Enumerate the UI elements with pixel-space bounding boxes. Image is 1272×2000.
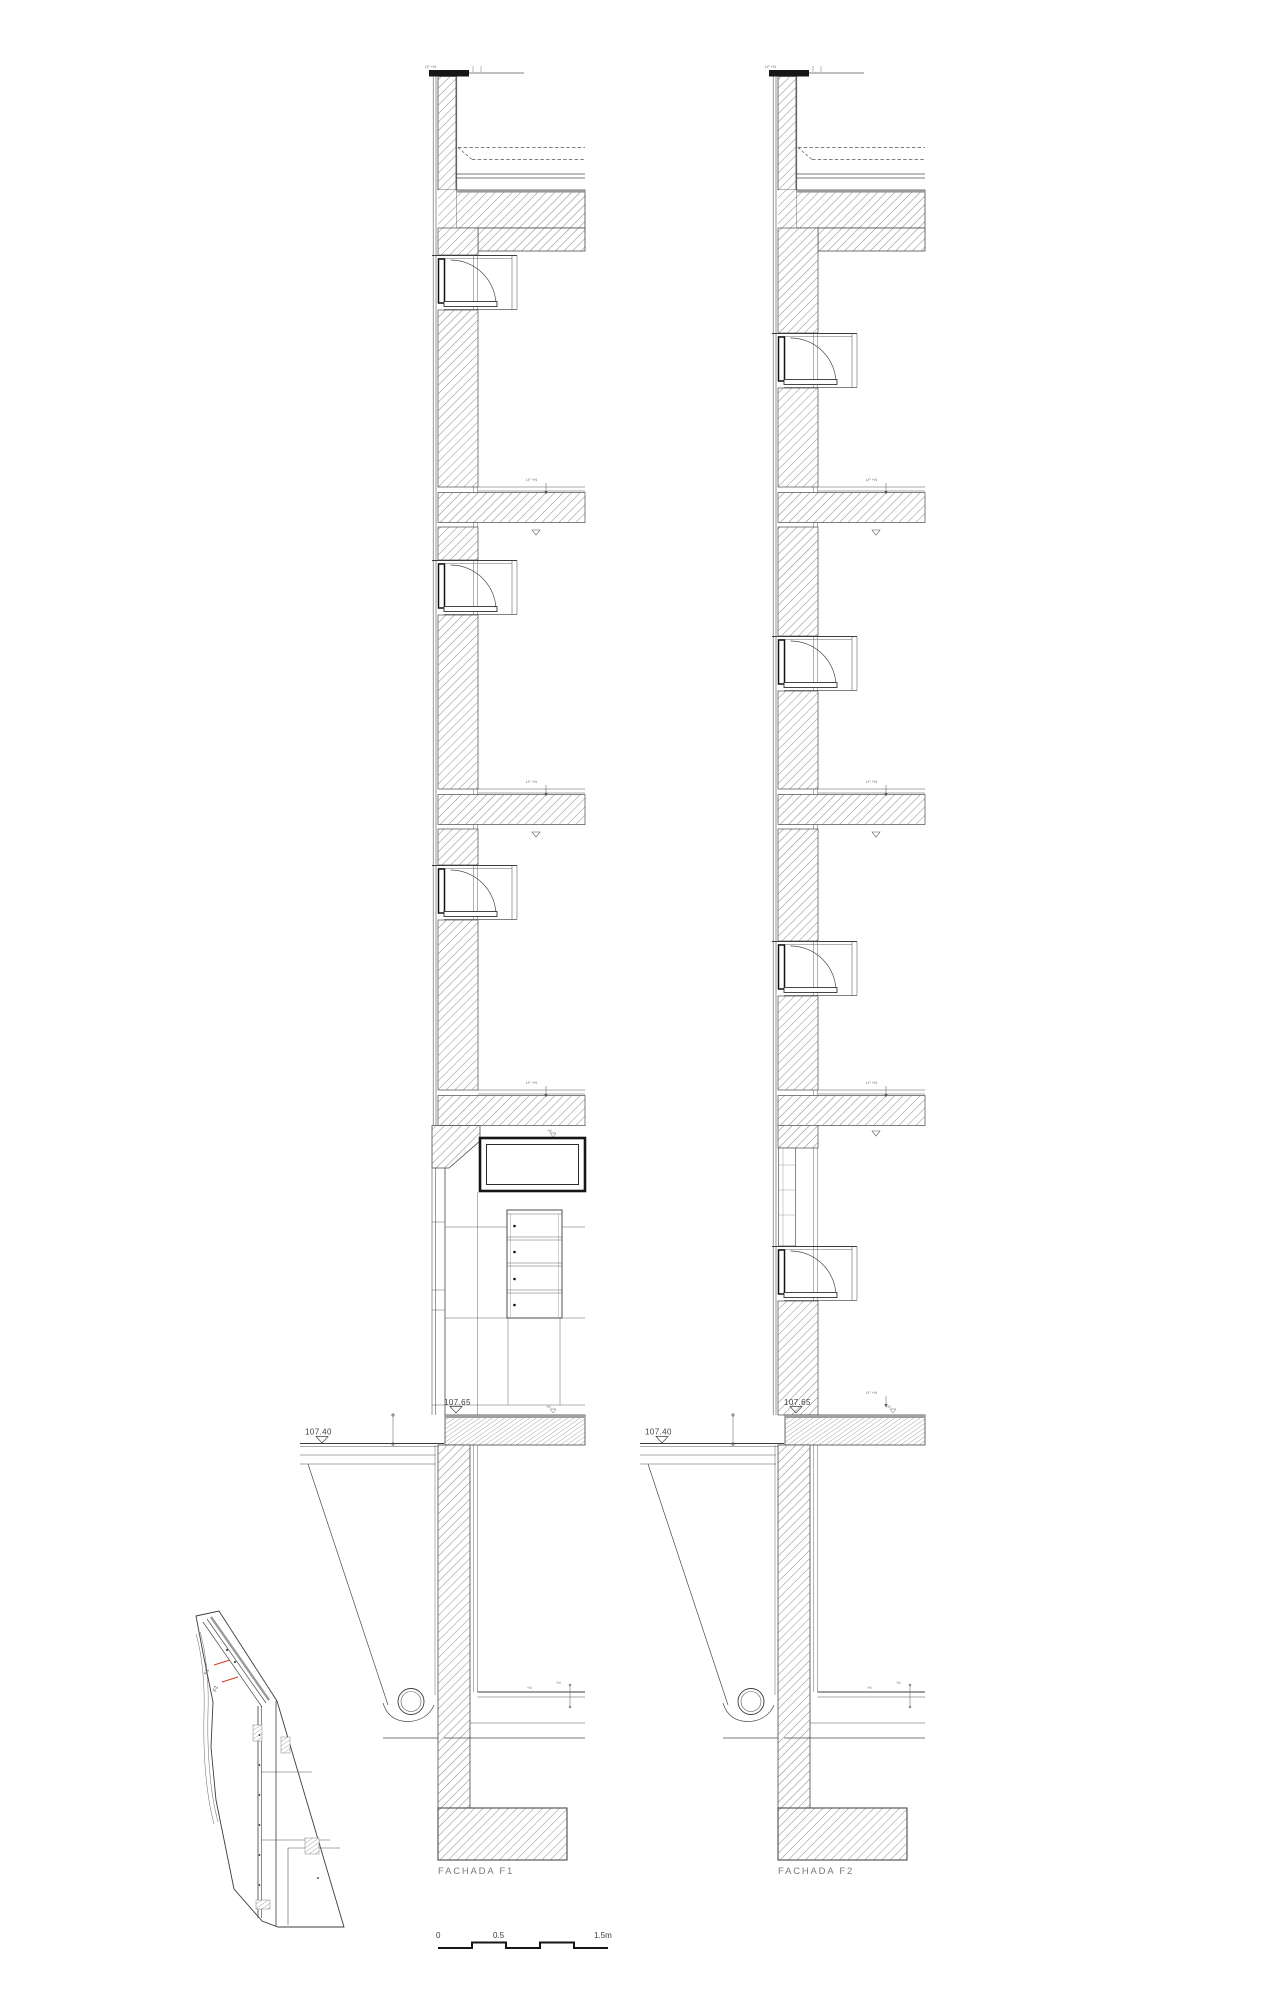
window-symbol [772, 334, 857, 388]
display-cabinet [507, 1210, 562, 1318]
floor-slab [778, 1090, 925, 1126]
floor-slab [778, 789, 925, 825]
shopfront: +N [432, 1126, 585, 1416]
scale-bar: 0 0.5 1.5m [436, 1931, 612, 1948]
level-triangle [532, 530, 540, 535]
facade-f1-section: +N [300, 64, 585, 1877]
slab-tag [866, 1080, 888, 1098]
window-symbol [772, 1247, 857, 1301]
facade-f2-section: FACHADA F2 [640, 64, 925, 1877]
wall-panel-strip [779, 1148, 796, 1246]
parapet [765, 64, 864, 190]
label-fachada-f2: FACHADA F2 [778, 1866, 854, 1877]
level-triangle [872, 832, 880, 837]
floor-slab [438, 487, 585, 523]
window-symbol [772, 637, 857, 691]
scale-bar-steps [438, 1943, 608, 1949]
slab-tag [866, 1390, 888, 1408]
level-triangle [532, 832, 540, 837]
shopfront-lintel [432, 1126, 480, 1169]
window-symbol [432, 256, 517, 310]
slab-tag [526, 1080, 548, 1098]
floor-slab [438, 789, 585, 825]
slab-tag [526, 477, 548, 495]
slab-tag [866, 477, 888, 495]
transom-tag: +N [547, 1129, 552, 1133]
drawing-sheet: LF +N [0, 0, 1272, 2000]
scale-half: 0.5 [493, 1931, 505, 1940]
exterior-grade [640, 1414, 784, 1738]
floor-slab [438, 1090, 585, 1126]
window-symbol [432, 866, 517, 920]
window-symbol [772, 942, 857, 996]
scale-zero: 0 [436, 1931, 441, 1940]
exterior-grade [300, 1414, 444, 1738]
parapet [425, 64, 524, 190]
basement [435, 1445, 585, 1860]
floor-slab [778, 487, 925, 523]
slab-tag [526, 779, 548, 797]
slab-tag [866, 779, 888, 797]
transom-window [480, 1138, 585, 1191]
plan-outline [196, 1611, 344, 1927]
window-symbol [432, 561, 517, 615]
facade-sections-drawing: LF +N [0, 0, 1272, 2000]
level-triangle [872, 1131, 880, 1136]
label-fachada-f1: FACHADA F1 [438, 1866, 514, 1877]
key-plan: F1 F2 [196, 1611, 344, 1927]
level-triangle [872, 530, 880, 535]
basement [775, 1445, 925, 1860]
ground-slab [784, 1398, 925, 1445]
scale-end: 1.5m [594, 1931, 612, 1940]
